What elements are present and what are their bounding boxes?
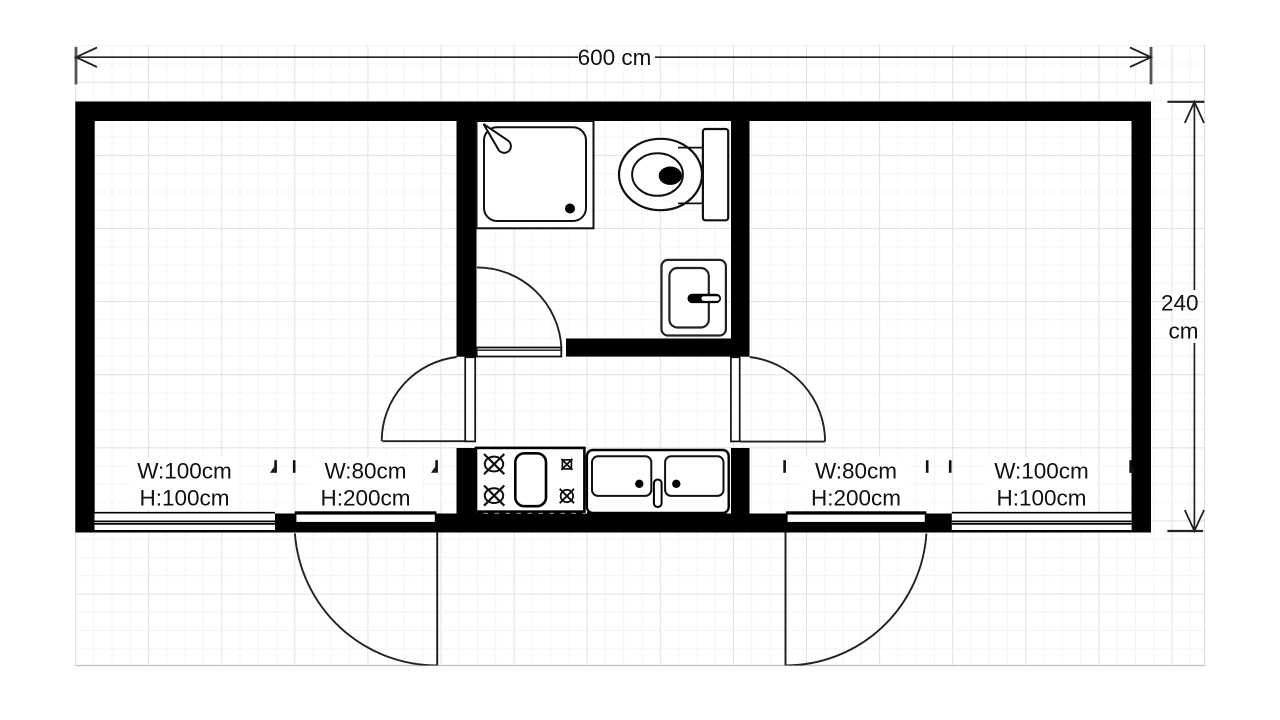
svg-text:H:100cm: H:100cm: [139, 486, 229, 511]
svg-text:H:100cm: H:100cm: [996, 486, 1086, 511]
svg-text:W:100cm: W:100cm: [994, 459, 1089, 484]
svg-text:600 cm: 600 cm: [578, 45, 652, 70]
svg-text:H:200cm: H:200cm: [320, 486, 410, 511]
svg-text:cm: cm: [1169, 319, 1199, 344]
svg-text:H:200cm: H:200cm: [811, 486, 901, 511]
svg-text:W:80cm: W:80cm: [324, 459, 406, 484]
svg-text:W:100cm: W:100cm: [137, 459, 232, 484]
svg-text:W:80cm: W:80cm: [815, 459, 897, 484]
svg-text:240: 240: [1161, 290, 1199, 315]
